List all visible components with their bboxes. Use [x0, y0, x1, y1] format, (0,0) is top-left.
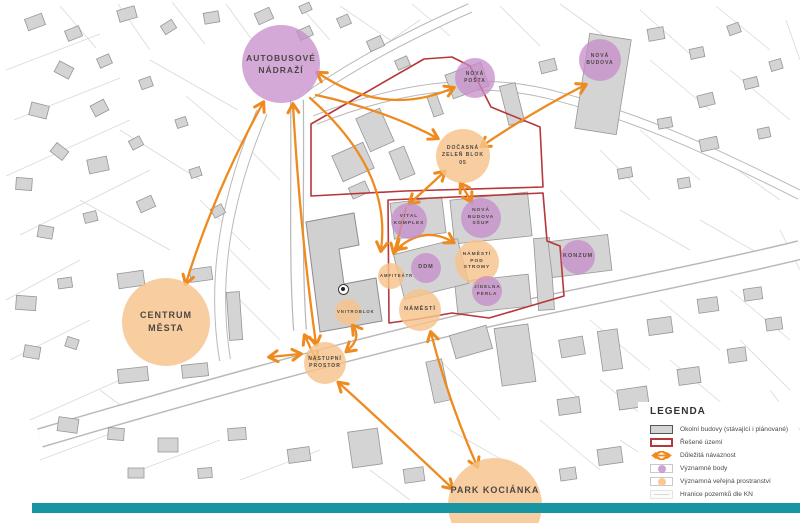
map-node-label: NÁMĚSTÍ POD STROMY: [457, 252, 497, 273]
map-node-label: PARK KOCIÁNKA: [450, 484, 540, 497]
legend-label: Důležitá návaznost: [680, 452, 736, 459]
legend-swatch-arrow: [650, 451, 673, 460]
legend-row-arrow: Důležitá návaznost: [650, 449, 798, 462]
legend-label: Okolní budovy (stávající i plánované): [680, 426, 788, 433]
parcel-line-icon: [654, 494, 669, 495]
legend-label: Hranice pozemků dle KN: [680, 491, 753, 498]
map-node-autobusove-nadrazi: AUTOBUSOVÉ NÁDRAŽÍ: [242, 25, 320, 103]
bottom-accent-bar: [32, 503, 800, 513]
map-node-label: DOČASNÁ ZELEŇ BLOK 05: [438, 145, 488, 167]
legend-label: Řešené území: [680, 439, 723, 446]
purple-point-icon: [658, 465, 666, 473]
site-analysis-map: AUTOBUSOVÉ NÁDRAŽÍNOVÁ POŠTANOVÁ BUDOVAD…: [0, 0, 800, 523]
map-node-label: NÁMĚSTÍ: [401, 306, 439, 314]
legend-row-boundary: Řešené území: [650, 436, 798, 449]
map-node-label: DDM: [413, 264, 439, 272]
legend-row-buildings: Okolní budovy (stávající i plánované): [650, 423, 798, 436]
map-node-vnitroblok: VNITROBLOK: [335, 299, 361, 325]
map-node-nastupni-prostor: NÁSTUPNÍ PROSTOR: [304, 342, 346, 384]
legend-label: Významné body: [680, 465, 727, 472]
legend-row-public-space: Významná veřejná prostranství: [650, 475, 798, 488]
map-node-nova-budova: NOVÁ BUDOVA: [579, 39, 621, 81]
map-node-nova-budova-ssup: NOVÁ BUDOVA SŠUP: [461, 198, 501, 238]
double-arrow-icon: [650, 451, 673, 460]
legend-swatch-boundary: [650, 438, 673, 447]
legend-row-parcels: Hranice pozemků dle KN: [650, 488, 798, 501]
legend-swatch-public-space: [650, 477, 673, 486]
legend-label: Významná veřejná prostranství: [680, 478, 771, 485]
map-node-label: NOVÁ POŠTA: [457, 71, 493, 86]
map-node-centrum-mesta: CENTRUM MĚSTA: [122, 278, 210, 366]
legend-swatch-points: [650, 464, 673, 473]
legend-swatch-buildings: [650, 425, 673, 434]
map-node-label: JÍDELNA PERLA: [474, 284, 500, 297]
map-node-label: NOVÁ BUDOVA SŠUP: [463, 208, 499, 229]
map-node-docasna-zelen: DOČASNÁ ZELEŇ BLOK 05: [436, 129, 490, 183]
poi-marker: [338, 284, 349, 295]
map-node-vital-komplex: VITAL KOMPLEX: [391, 203, 427, 239]
map-node-namesti: NÁMĚSTÍ: [399, 289, 441, 331]
map-node-label: AMFITEÁTR: [380, 273, 402, 279]
map-node-nova-posta: NOVÁ POŠTA: [455, 58, 495, 98]
legend-heading: LEGENDA: [650, 406, 798, 417]
map-node-jidelna-perla: JÍDELNA PERLA: [472, 276, 502, 306]
map-node-ddm: DDM: [411, 253, 441, 283]
legend-swatch-parcels: [650, 490, 673, 499]
map-node-label: CENTRUM MĚSTA: [124, 309, 208, 335]
legend-row-points: Významné body: [650, 462, 798, 475]
map-node-label: VNITROBLOK: [337, 309, 359, 315]
map-node-label: VITAL KOMPLEX: [393, 214, 425, 228]
map-node-konzum: KONZUM: [561, 240, 595, 274]
orange-area-icon: [658, 478, 666, 486]
map-node-label: NOVÁ BUDOVA: [581, 53, 619, 68]
map-node-label: AUTOBUSOVÉ NÁDRAŽÍ: [244, 52, 318, 77]
legend: LEGENDA Okolní budovy (stávající i pláno…: [638, 402, 798, 502]
map-node-label: NÁSTUPNÍ PROSTOR: [306, 356, 344, 371]
map-node-label: KONZUM: [563, 253, 593, 261]
map-node-amfiteatr: AMFITEÁTR: [378, 263, 404, 289]
